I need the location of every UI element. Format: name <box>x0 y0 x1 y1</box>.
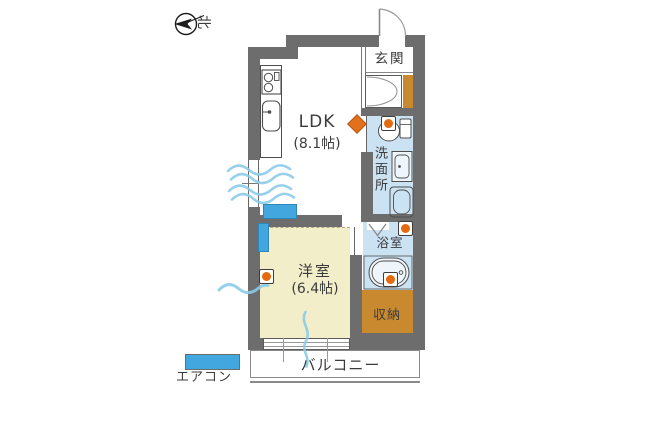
room-label-yokushitsu: 浴室 <box>372 236 408 250</box>
control-button <box>383 272 398 287</box>
window-tick <box>283 338 284 362</box>
wall-segment <box>361 108 413 116</box>
air-conditioner <box>258 223 269 252</box>
room-size-ldk: (8.1帖) <box>268 136 366 152</box>
button-dot <box>262 272 271 281</box>
shoe-closet <box>365 75 402 108</box>
bath-doorway-gap <box>367 222 389 230</box>
floor-plan: 玄関 LDK (8.1帖) 洗面所 浴室 洋室 (6.4帖) 収納 バルコニー … <box>0 0 657 429</box>
control-button <box>398 221 413 236</box>
wall-segment <box>248 47 260 160</box>
bedroom-doorway-gap <box>342 215 361 227</box>
legend-aircon-swatch <box>185 354 240 370</box>
air-conditioner <box>263 204 297 219</box>
button-dot <box>384 119 393 128</box>
button-dot <box>401 224 410 233</box>
entrance-door-arc <box>380 9 406 36</box>
window-track-line <box>264 342 349 343</box>
entrance-doorway-gap <box>379 34 405 48</box>
wall-segment <box>413 35 425 350</box>
balcony-sliding-window <box>263 338 350 350</box>
legend-aircon-label: エアコン <box>176 371 238 386</box>
room-label-senmenjo: 洗面所 <box>371 146 386 194</box>
bedroom-doorway-gap <box>350 227 362 255</box>
control-button <box>381 116 396 131</box>
entrance-step-line <box>366 72 413 73</box>
window-track-line <box>264 346 349 347</box>
button-dot <box>386 275 395 284</box>
room-size-youshitsu: (6.4帖) <box>271 281 359 297</box>
room-label-balcony: バルコニー <box>288 357 393 374</box>
balcony-edge-line <box>250 381 420 383</box>
sliding-door-line <box>354 227 355 255</box>
room-label-ldk: LDK <box>278 113 356 133</box>
wall-segment <box>350 333 425 350</box>
wall-segment <box>295 35 379 47</box>
compass-north-label: 北 <box>195 15 211 29</box>
room-label-youshitsu: 洋室 <box>277 263 353 280</box>
window-divider <box>242 183 259 184</box>
shoe-closet-panel <box>403 75 413 108</box>
room-label-genkan: 玄関 <box>368 52 412 68</box>
wall-segment <box>248 338 264 350</box>
room-label-shuunou: 収納 <box>366 309 408 324</box>
